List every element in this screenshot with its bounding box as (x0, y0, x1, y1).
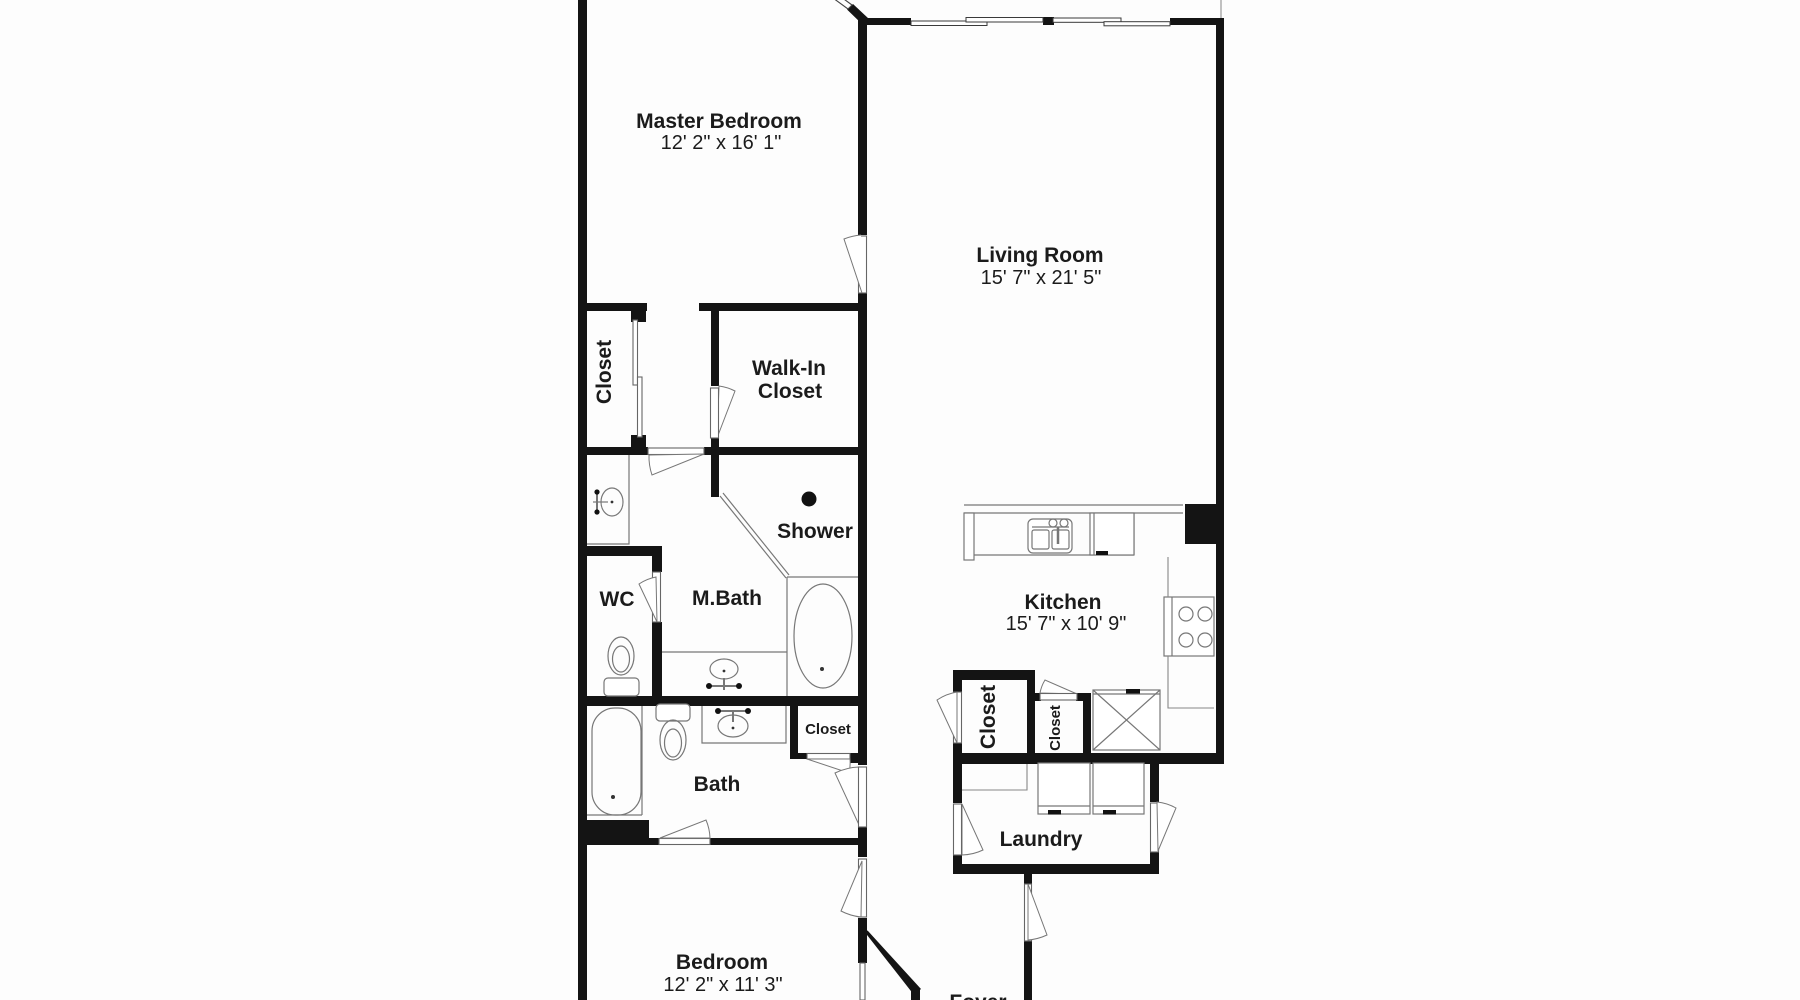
svg-text:Bath: Bath (694, 773, 741, 796)
svg-text:Shower: Shower (777, 520, 853, 543)
svg-text:Closet: Closet (805, 721, 851, 738)
svg-text:M.Bath: M.Bath (692, 587, 762, 610)
svg-text:Bedroom: Bedroom (676, 951, 768, 974)
svg-text:15' 7" x 21' 5": 15' 7" x 21' 5" (981, 267, 1102, 289)
svg-text:15' 7" x 10' 9": 15' 7" x 10' 9" (1006, 613, 1127, 635)
svg-text:12' 2" x 11' 3": 12' 2" x 11' 3" (663, 974, 782, 996)
svg-text:Laundry: Laundry (1000, 828, 1083, 851)
svg-text:Walk-In: Walk-In (752, 357, 826, 380)
svg-text:Master Bedroom: Master Bedroom (636, 110, 802, 133)
svg-text:Closet: Closet (977, 685, 1000, 749)
svg-text:Living Room: Living Room (976, 244, 1103, 267)
svg-text:WC: WC (600, 588, 635, 611)
svg-text:Foyer: Foyer (949, 991, 1006, 1000)
svg-text:Kitchen: Kitchen (1024, 591, 1101, 614)
svg-text:Closet: Closet (593, 340, 616, 404)
svg-text:Closet: Closet (758, 380, 822, 403)
svg-text:12' 2" x 16' 1": 12' 2" x 16' 1" (661, 132, 782, 154)
svg-text:Closet: Closet (1047, 705, 1064, 751)
